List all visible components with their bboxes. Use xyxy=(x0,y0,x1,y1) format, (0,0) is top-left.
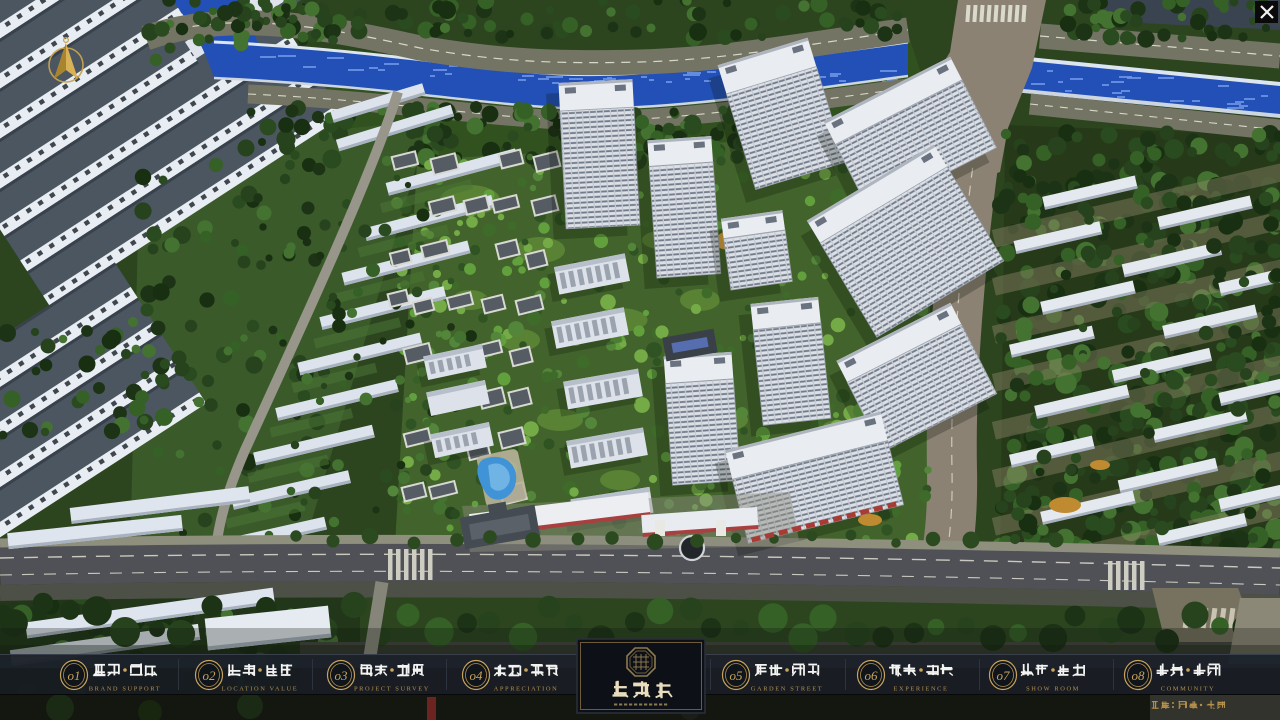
svg-text:o1: o1 xyxy=(68,668,81,683)
svg-text:LOCATION VALUE: LOCATION VALUE xyxy=(222,686,299,693)
svg-text:EXPERIENCE: EXPERIENCE xyxy=(893,686,948,693)
svg-text:o3: o3 xyxy=(335,668,349,683)
svg-text:COMMUNITY: COMMUNITY xyxy=(1161,686,1216,693)
svg-text:o2: o2 xyxy=(203,668,217,683)
svg-text:o4: o4 xyxy=(470,668,484,683)
svg-text:o7: o7 xyxy=(997,668,1011,683)
svg-text:BRAND SUPPORT: BRAND SUPPORT xyxy=(89,686,161,693)
svg-text:GARDEN STREET: GARDEN STREET xyxy=(751,686,823,693)
svg-text:SHOW ROOM: SHOW ROOM xyxy=(1026,686,1080,693)
svg-text:o6: o6 xyxy=(865,668,879,683)
svg-text:PROJECT SURVEY: PROJECT SURVEY xyxy=(354,686,430,693)
svg-text:o5: o5 xyxy=(730,668,744,683)
svg-text:o8: o8 xyxy=(1132,668,1146,683)
svg-text:APPRECIATION: APPRECIATION xyxy=(494,686,559,693)
